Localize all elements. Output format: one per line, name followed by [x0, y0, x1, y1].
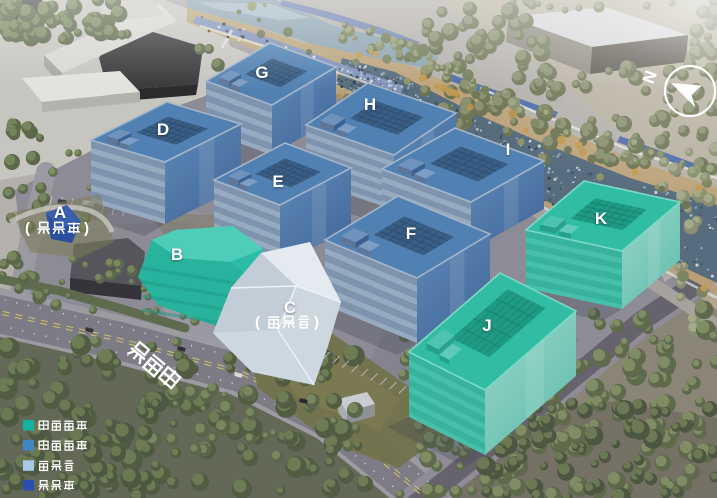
svg-text:F: F — [406, 224, 416, 243]
svg-text:J: J — [482, 316, 491, 335]
svg-text:): ) — [84, 220, 89, 237]
svg-text:C: C — [284, 298, 296, 317]
svg-text:E: E — [272, 172, 283, 191]
svg-text:): ) — [314, 314, 319, 331]
svg-text:D: D — [157, 120, 169, 139]
svg-text:G: G — [255, 63, 268, 82]
svg-text:(: ( — [255, 314, 260, 331]
svg-text:B: B — [171, 245, 183, 264]
svg-text:(: ( — [25, 220, 30, 237]
svg-text:H: H — [364, 95, 376, 114]
svg-text:A: A — [54, 203, 66, 222]
svg-text:I: I — [506, 140, 511, 159]
svg-text:K: K — [595, 209, 608, 228]
